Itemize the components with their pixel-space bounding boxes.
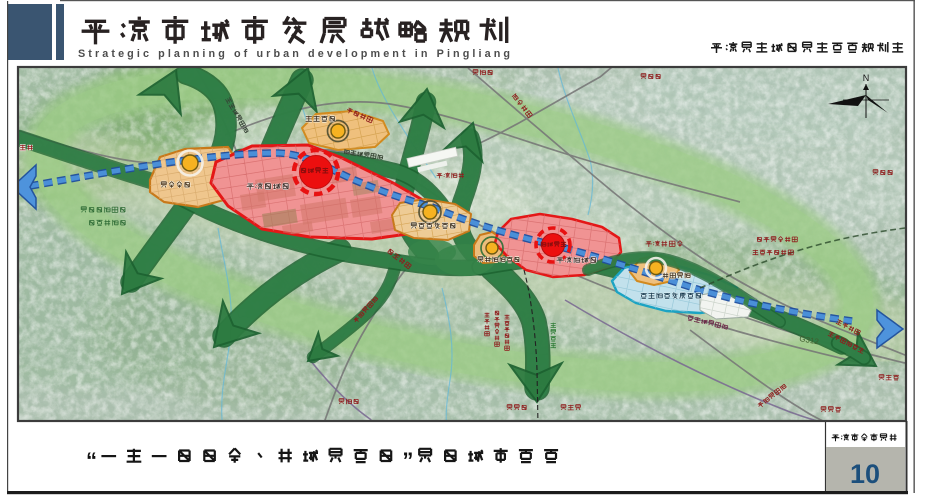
svg-text:10: 10: [850, 459, 880, 489]
svg-text:”: ”: [402, 448, 413, 473]
svg-text:“: “: [86, 448, 97, 473]
svg-text:N: N: [863, 73, 870, 83]
